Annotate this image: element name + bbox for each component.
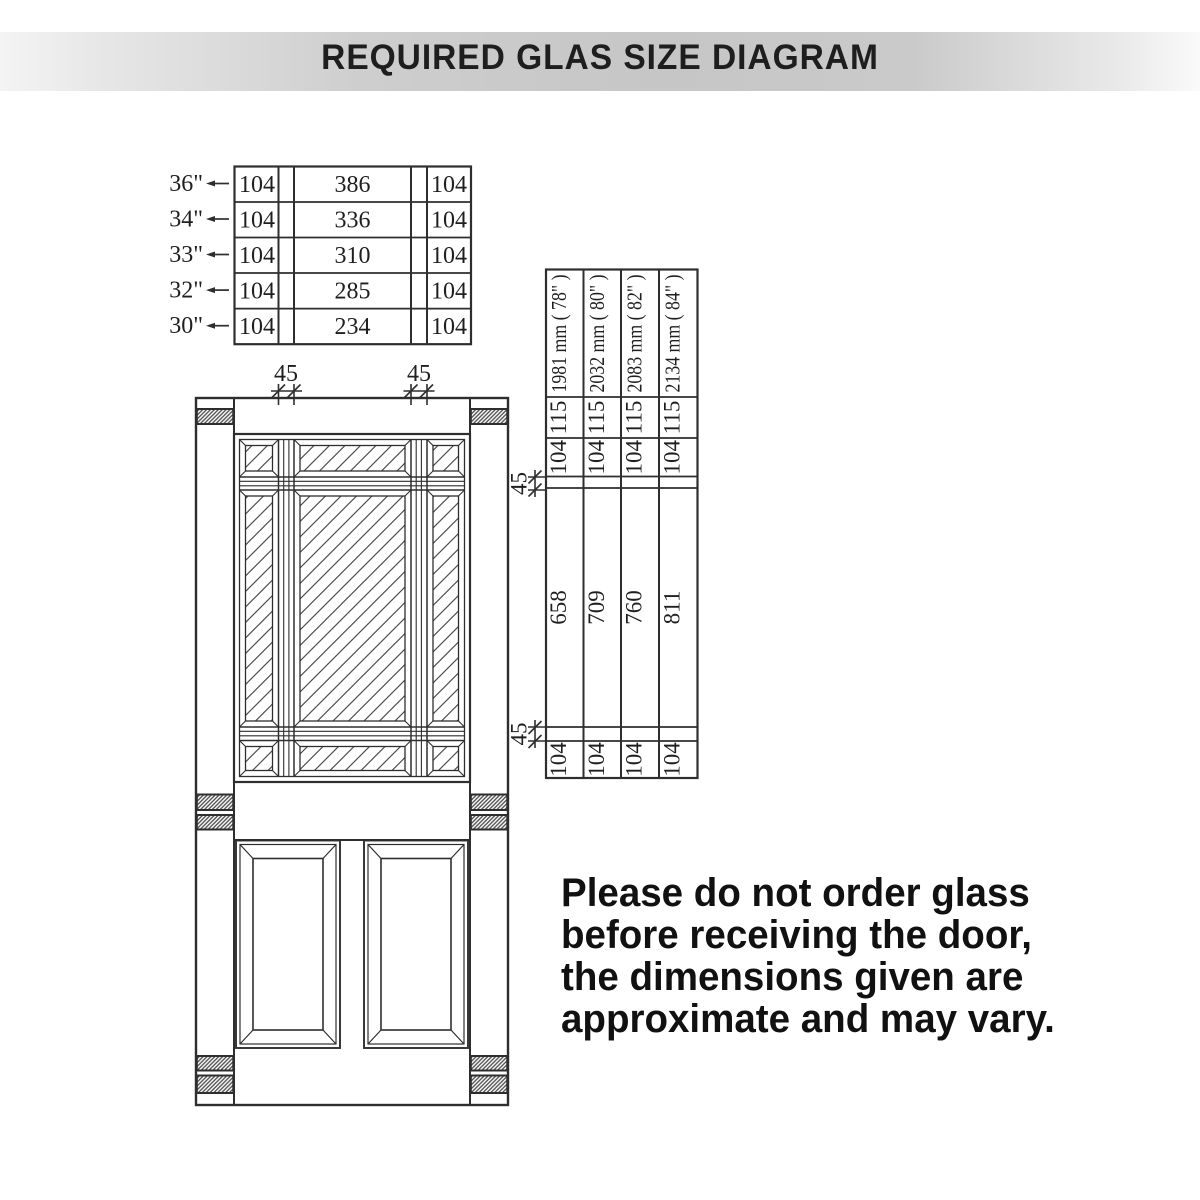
svg-text:104: 104 bbox=[431, 279, 467, 305]
svg-text:33": 33" bbox=[169, 242, 203, 268]
svg-text:2032 mm ( 80" ): 2032 mm ( 80" ) bbox=[585, 275, 609, 393]
svg-text:115: 115 bbox=[622, 401, 647, 435]
svg-text:104: 104 bbox=[431, 314, 467, 340]
svg-text:2083 mm ( 82" ): 2083 mm ( 82" ) bbox=[623, 275, 647, 393]
svg-text:36": 36" bbox=[169, 171, 203, 197]
svg-text:32": 32" bbox=[169, 278, 203, 304]
svg-text:658: 658 bbox=[546, 590, 571, 625]
svg-text:104: 104 bbox=[431, 172, 467, 198]
svg-text:386: 386 bbox=[335, 172, 371, 198]
svg-text:104: 104 bbox=[239, 243, 275, 269]
svg-text:45: 45 bbox=[274, 361, 298, 387]
svg-text:1981 mm ( 78" ): 1981 mm ( 78" ) bbox=[547, 275, 571, 393]
svg-text:45: 45 bbox=[507, 723, 532, 746]
svg-text:115: 115 bbox=[584, 401, 609, 435]
svg-text:104: 104 bbox=[622, 439, 647, 474]
svg-text:336: 336 bbox=[335, 208, 371, 234]
svg-text:115: 115 bbox=[546, 401, 571, 435]
svg-text:104: 104 bbox=[584, 742, 609, 777]
svg-text:709: 709 bbox=[584, 590, 609, 625]
svg-text:104: 104 bbox=[660, 742, 685, 777]
svg-text:115: 115 bbox=[660, 401, 685, 435]
svg-text:104: 104 bbox=[546, 742, 571, 777]
svg-text:104: 104 bbox=[431, 208, 467, 234]
svg-text:104: 104 bbox=[239, 208, 275, 234]
svg-text:45: 45 bbox=[407, 361, 431, 387]
svg-text:104: 104 bbox=[239, 172, 275, 198]
svg-text:234: 234 bbox=[335, 314, 371, 340]
svg-text:104: 104 bbox=[239, 279, 275, 305]
svg-text:104: 104 bbox=[239, 314, 275, 340]
svg-text:811: 811 bbox=[660, 591, 685, 625]
svg-text:34": 34" bbox=[169, 207, 203, 233]
svg-text:310: 310 bbox=[335, 243, 371, 269]
svg-text:285: 285 bbox=[335, 279, 371, 305]
svg-text:104: 104 bbox=[546, 439, 571, 474]
svg-text:104: 104 bbox=[584, 439, 609, 474]
svg-text:104: 104 bbox=[660, 439, 685, 474]
svg-text:760: 760 bbox=[622, 590, 647, 625]
svg-text:45: 45 bbox=[507, 472, 532, 495]
svg-text:30": 30" bbox=[169, 313, 203, 339]
svg-text:2134 mm ( 84" ): 2134 mm ( 84" ) bbox=[661, 275, 685, 393]
svg-text:104: 104 bbox=[622, 742, 647, 777]
svg-text:104: 104 bbox=[431, 243, 467, 269]
